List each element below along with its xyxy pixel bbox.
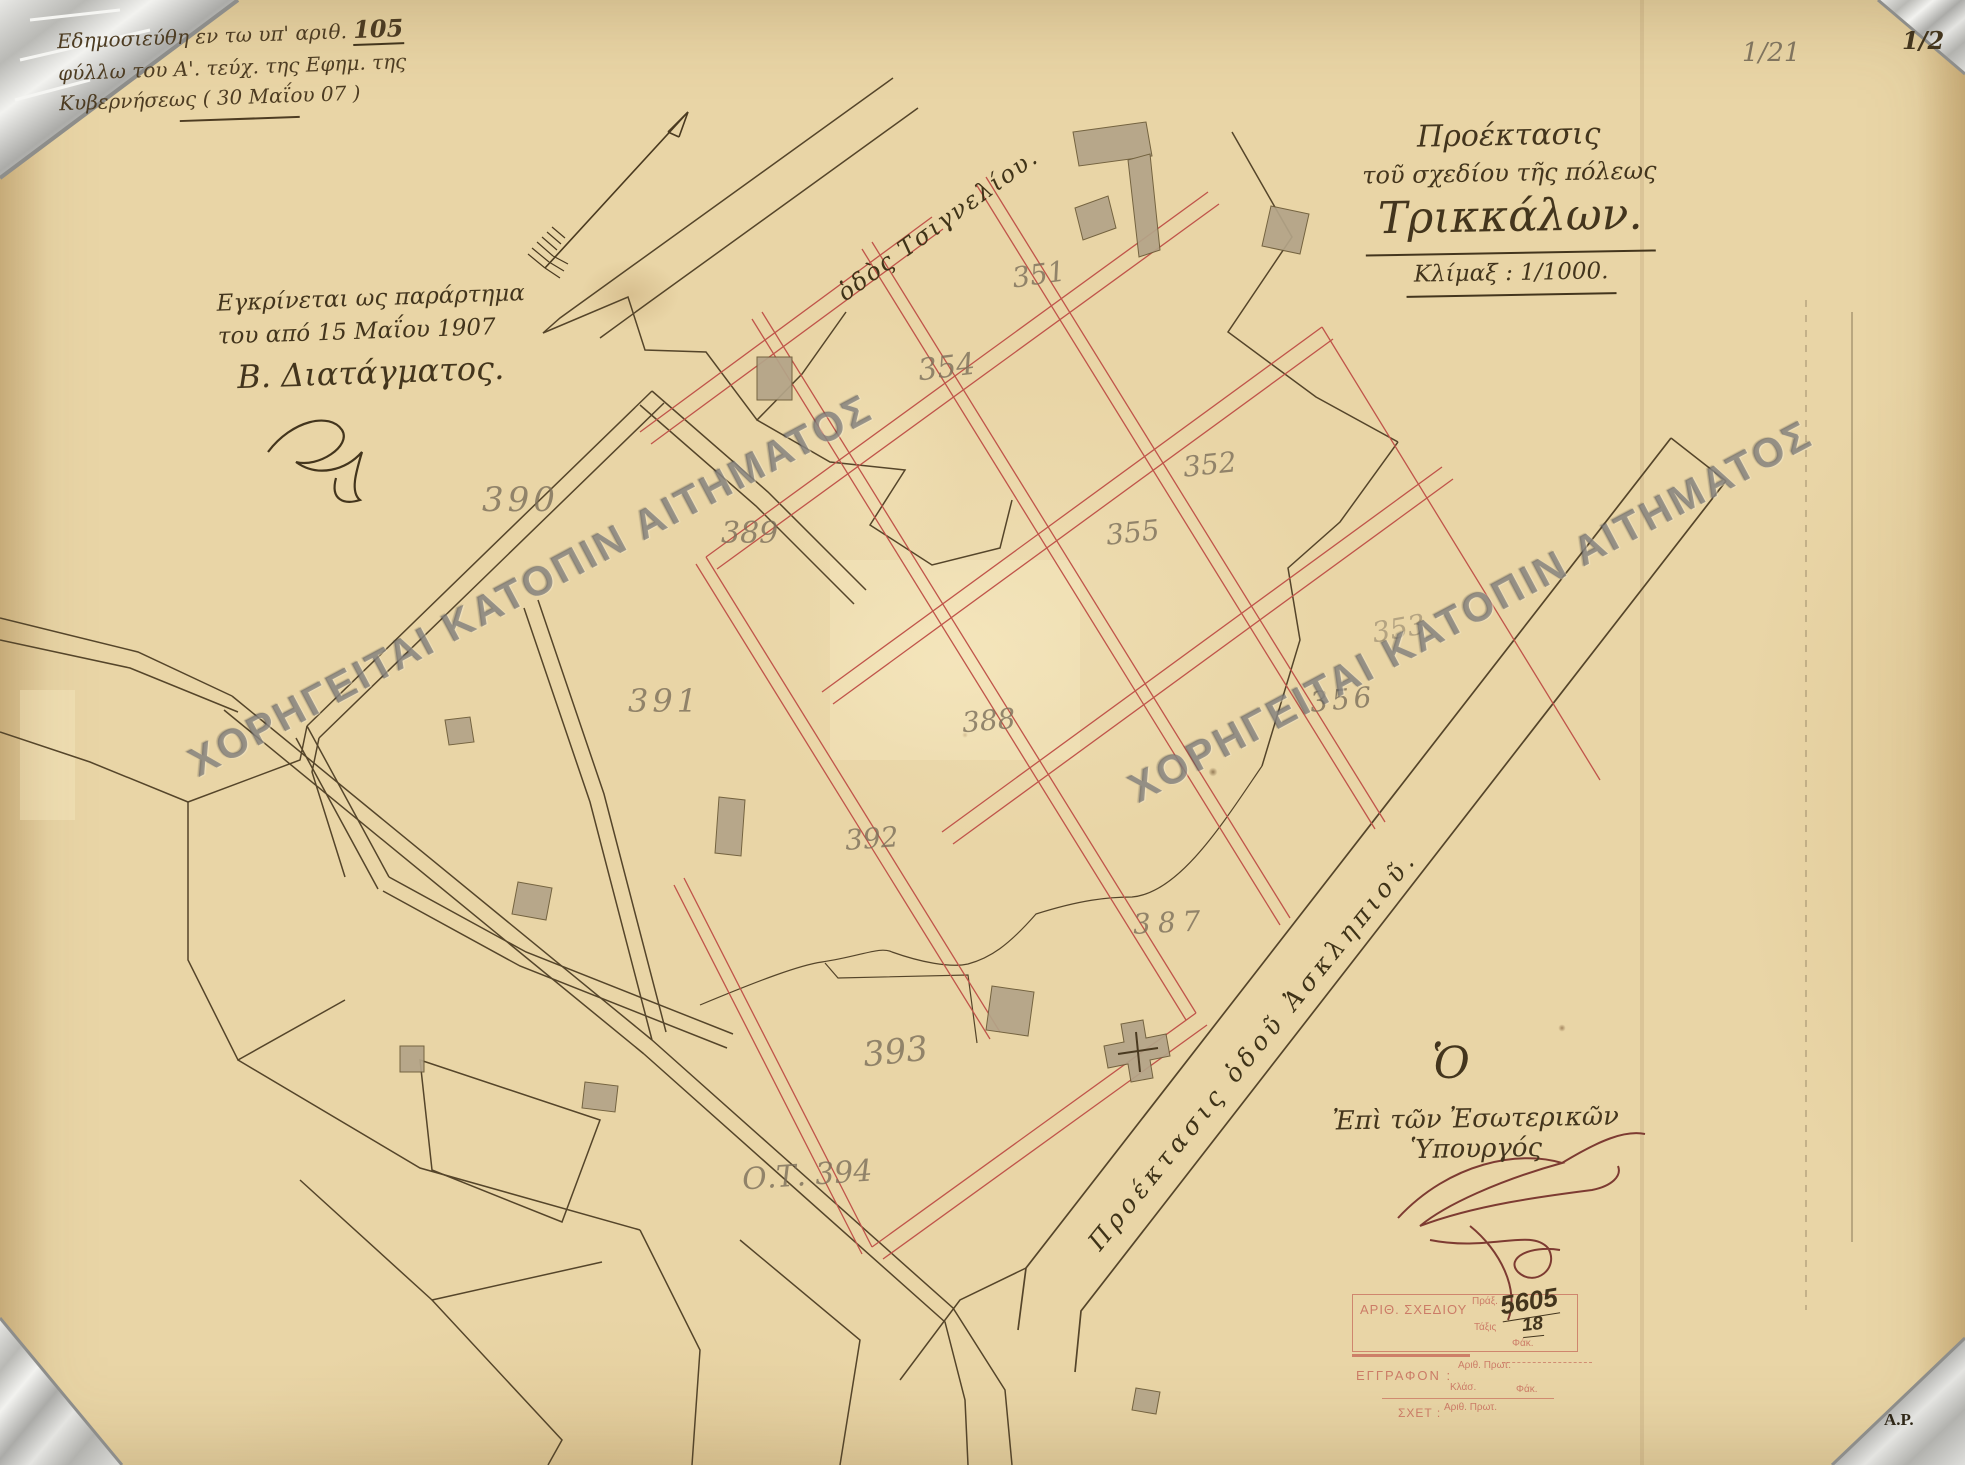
stamp-label-fak1: Φάκ. [1512, 1338, 1534, 1349]
title-rule [1366, 249, 1656, 256]
note-gazette-number: 105 [353, 13, 404, 46]
block-number-388: 388 [961, 702, 1017, 740]
map-title-line2: τοῦ σχεδίου τῆς πόλεως [1354, 156, 1664, 189]
title-block: Προέκτασις τοῦ σχεδίου τῆς πόλεως Τρικκά… [1353, 115, 1666, 298]
block-number-393: 393 [861, 1029, 930, 1076]
block-number-354: 354 [916, 347, 977, 389]
block-number-392: 392 [844, 820, 900, 857]
map-sheet: ὁδὸς Τσιγνελίου. Προέκτασις ὁδοῦ Ἀσκληπι… [0, 0, 1965, 1465]
block-number-389: 389 [721, 516, 778, 551]
stamp-label-eggrafon: ΕΓΓΡΑΦΟΝ : [1356, 1368, 1452, 1383]
block-number-352: 352 [1181, 445, 1238, 483]
red-plan-grid [640, 177, 1600, 1259]
stamp-label-prax: Πράξ. [1472, 1296, 1498, 1307]
stamp-divider [1352, 1354, 1470, 1357]
map-scale: Κλίμαξ : 1/1000. [1356, 257, 1666, 288]
block-number-387: 387 [1132, 904, 1208, 941]
stamp-label-arprot1: Αριθ. Πρωτ. [1458, 1360, 1511, 1371]
folio-number-ink: 1/2 [1902, 26, 1944, 55]
folio-number-pencil: 1/21 [1742, 38, 1800, 68]
stamp-label-klas: Κλάσ. [1450, 1382, 1476, 1393]
map-title-city: Τρικκάλων. [1355, 188, 1666, 244]
stamp-taxis-value: 18 [1521, 1313, 1544, 1338]
registry-stamp: ΑΡΙΘ. ΣΧΕΔΙΟΥ Πράξ. 5605 Τάξις 18 Φάκ. Ε… [1352, 1292, 1588, 1428]
minister-title: Ἐπὶ τῶν Ἐσωτερικῶν Ὑπουργός [1276, 1101, 1677, 1168]
block-number-390: 390 [482, 480, 559, 520]
stamp-label-arprot2: Αριθ. Πρωτ. [1444, 1402, 1497, 1413]
block-number-391: 391 [628, 682, 701, 720]
note-line1: Εδημοσιεύθη εν τω υπ' αριθ. [57, 19, 348, 53]
stamp-divider-dash [1502, 1362, 1592, 1363]
minister-omicron: Ὁ [1432, 1038, 1470, 1089]
stamp-label-fak2: Φάκ. [1516, 1384, 1538, 1395]
publication-note: Εδημοσιεύθη εν τω υπ' αριθ. 105 φύλλω το… [56, 10, 419, 127]
block-number-355: 355 [1104, 513, 1161, 551]
approval-signature [268, 421, 362, 502]
map-title-line1: Προέκτασις [1353, 115, 1664, 155]
stamp-underline [1382, 1398, 1554, 1399]
stamp-label-plan-no: ΑΡΙΘ. ΣΧΕΔΙΟΥ [1360, 1302, 1467, 1317]
north-arrow-icon [528, 112, 688, 278]
approval-note: Εγκρίνεται ως παράρτημα του από 15 Μαΐου… [216, 276, 550, 401]
archivist-initials: Α.Ρ. [1884, 1410, 1914, 1430]
stamp-label-sxet: ΣΧΕΤ : [1398, 1406, 1441, 1420]
stamp-label-taxis: Τάξις [1474, 1322, 1496, 1333]
